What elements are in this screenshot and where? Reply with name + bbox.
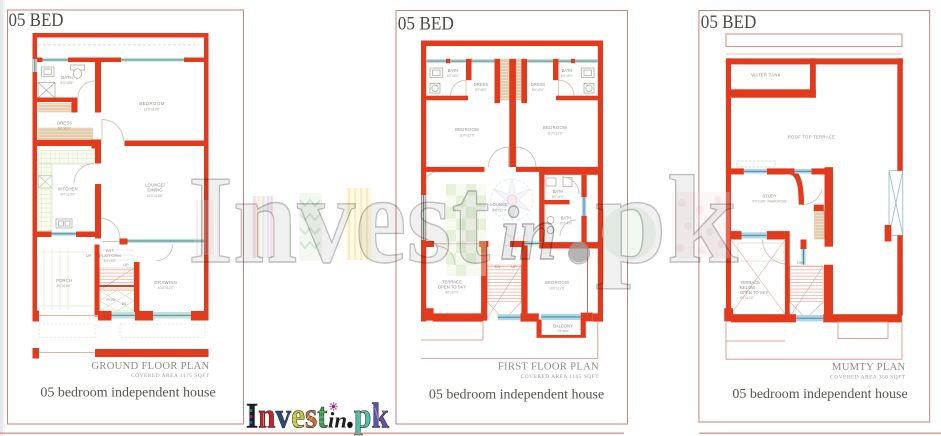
svg-text:OPEN TO SKY: OPEN TO SKY [740,290,768,295]
svg-text:05 bedroom independent house: 05 bedroom independent house [429,388,604,403]
svg-text:8'0"x10'0": 8'0"x10'0" [740,296,754,300]
svg-text:9'0"x10'6"+WARDROBE: 9'0"x10'6"+WARDROBE [752,200,786,204]
svg-text:11'0"x12'0": 11'0"x12'0" [547,132,562,136]
svg-text:8'0"x16'0": 8'0"x16'0" [57,284,73,288]
svg-text:05 bedroom independent house: 05 bedroom independent house [732,387,907,402]
svg-text:in: in [328,408,347,433]
svg-text:COVERED AREA 1105 SQFT: COVERED AREA 1105 SQFT [521,374,600,380]
svg-text:BATH: BATH [448,68,459,73]
svg-text:6'0"x5'0": 6'0"x5'0" [475,88,487,92]
svg-text:.pk: .pk [563,151,738,290]
svg-text:BEDROOM: BEDROOM [455,127,479,132]
svg-text:UP: UP [86,253,92,258]
svg-text:6'0"x5'0": 6'0"x5'0" [447,74,459,78]
svg-text:COVERED AREA 1175 SQFT: COVERED AREA 1175 SQFT [131,373,210,379]
svg-text:8'0"x10'0": 8'0"x10'0" [445,291,459,295]
svg-text:BATH: BATH [61,75,72,80]
svg-text:BEDROOM: BEDROOM [543,125,567,130]
svg-text:POW: POW [106,298,115,302]
svg-text:3'6"wide: 3'6"wide [557,329,569,333]
svg-text:05 bedroom independent house: 05 bedroom independent house [40,386,215,401]
svg-text:BALCONY: BALCONY [553,324,573,329]
svg-text:6'0"x5'0": 6'0"x5'0" [58,127,72,131]
svg-text:PLATFORM: PLATFORM [99,253,120,258]
svg-text:UP: UP [123,262,129,267]
svg-text:Invest: Invest [246,396,328,436]
svg-text:DRESS: DRESS [57,121,72,126]
svg-text:11'0"x12'0": 11'0"x12'0" [459,134,474,138]
svg-text:WATER TANK: WATER TANK [751,73,781,78]
svg-text:6'0"x6'0": 6'0"x6'0" [104,259,116,263]
svg-text:DINING: DINING [147,188,163,193]
svg-text:05 BED: 05 BED [398,14,454,35]
svg-text:ROOF TOP TERRACE: ROOF TOP TERRACE [788,135,836,140]
svg-text:8'0"x10'6": 8'0"x10'6" [61,193,77,197]
svg-text:DN: DN [797,260,803,265]
svg-text:KITCHEN: KITCHEN [58,187,77,192]
svg-text:GROUND FLOOR PLAN: GROUND FLOOR PLAN [91,361,209,372]
svg-text:10'6"x12'0": 10'6"x12'0" [158,286,176,290]
svg-text:COVERED AREA 350 SQFT: COVERED AREA 350 SQFT [830,375,906,381]
svg-text:DRESS: DRESS [531,82,546,87]
svg-text:STUDY: STUDY [762,194,776,199]
svg-text:.pk: .pk [346,396,389,436]
svg-text:DRESS: DRESS [474,82,489,87]
svg-text:Invest: Invest [188,151,490,290]
svg-text:B'6: B'6 [122,302,127,306]
svg-text:05 BED: 05 BED [9,10,64,31]
svg-text:6'0"x5'6": 6'0"x5'6" [61,81,75,85]
svg-text:PORCH: PORCH [56,278,72,283]
svg-text:6'0"x5'0": 6'0"x5'0" [532,88,544,92]
svg-text:12'0"x15'6": 12'0"x15'6" [147,194,165,198]
svg-text:FIRST FLOOR PLAN: FIRST FLOOR PLAN [498,362,599,373]
svg-text:05 BED: 05 BED [701,12,757,33]
svg-text:12'0"x13'0": 12'0"x13'0" [144,108,162,112]
svg-text:MUMTY PLAN: MUMTY PLAN [832,362,906,373]
svg-text:DRAWING: DRAWING [154,280,177,285]
svg-text:BEDROOM: BEDROOM [139,101,165,106]
svg-text:BATH: BATH [562,68,573,73]
svg-text:6'0"x5'0": 6'0"x5'0" [561,74,573,78]
svg-text:in: in [500,192,557,276]
